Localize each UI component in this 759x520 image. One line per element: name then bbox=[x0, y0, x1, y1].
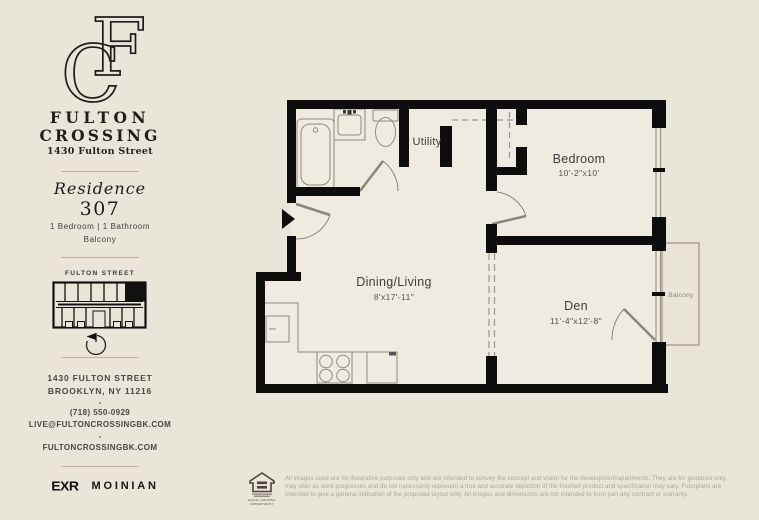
room-dims-bedroom: 10'-2"x10' bbox=[529, 168, 629, 178]
wall-bedroom-den-divider bbox=[497, 236, 652, 245]
room-dims-den: 11'-4"x12'-8" bbox=[526, 316, 626, 326]
disclaimer-line-3: intended to give a general indication of… bbox=[285, 491, 705, 499]
wall-left-lower bbox=[256, 272, 265, 393]
wall-top bbox=[287, 100, 666, 109]
wall-bedroom-closet-bottom bbox=[486, 167, 527, 175]
disclaimer-text: All images used are for illustrative pur… bbox=[285, 475, 705, 500]
wall-bottom bbox=[256, 384, 668, 393]
wall-right-mid bbox=[652, 217, 666, 251]
wall-closet-divider bbox=[486, 100, 497, 167]
equal-housing-icon bbox=[249, 472, 275, 498]
wall-partition-bottom-stub bbox=[486, 356, 497, 384]
wall-right-lower bbox=[652, 342, 666, 393]
room-label-utility: Utility bbox=[392, 136, 462, 148]
wall-right-top-corner bbox=[652, 100, 666, 128]
wall-bedroom-door-stub-bottom bbox=[486, 224, 497, 253]
wall-bedroom-door-stub-top bbox=[486, 175, 497, 191]
room-dims-dining-living: 8'x17'-11" bbox=[334, 292, 454, 302]
wall-bathroom-bottom bbox=[296, 187, 360, 196]
wall-left-upper bbox=[287, 100, 296, 203]
equal-housing-label: EQUAL HOUSING OPPORTUNITY bbox=[246, 498, 278, 506]
bedroom-window-mullion bbox=[653, 168, 665, 172]
room-label-bedroom: Bedroom bbox=[529, 152, 629, 166]
disclaimer-line-1: All images used are for illustrative pur… bbox=[285, 475, 705, 483]
wall-bedroom-closet-stub-bottom bbox=[516, 147, 527, 167]
room-label-den: Den bbox=[526, 299, 626, 313]
wall-left-mid bbox=[287, 236, 296, 278]
wall-bedroom-closet-stub-top bbox=[516, 109, 527, 125]
room-label-dining-living: Dining/Living bbox=[334, 275, 454, 289]
disclaimer-line-2: may alter as work progresses and do not … bbox=[285, 483, 705, 491]
floorplan-flyer-page: { "colors": { "background": "#e9e5d9", "… bbox=[0, 0, 759, 520]
room-label-balcony: Balcony bbox=[662, 292, 700, 299]
floorplan-drawing bbox=[0, 0, 759, 520]
